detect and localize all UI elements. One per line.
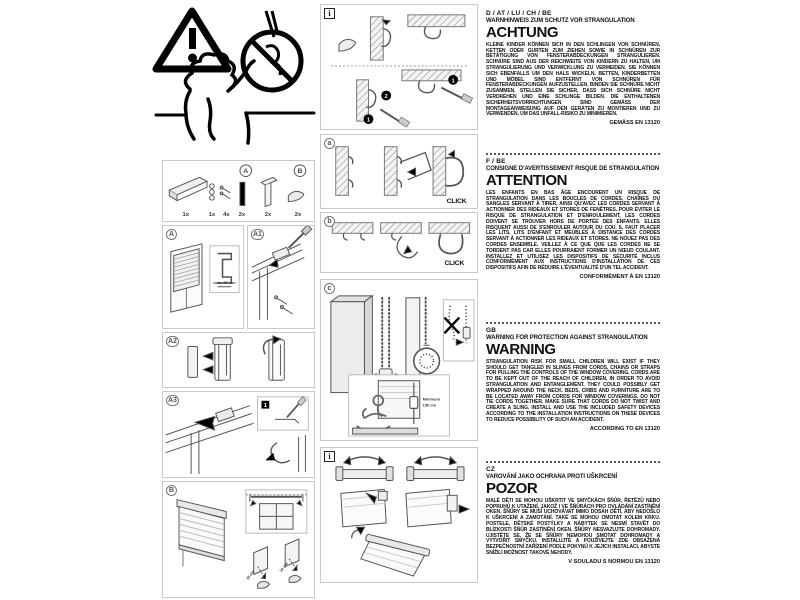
step-a-label: A bbox=[166, 229, 177, 240]
wall-click-panel: a CLICK bbox=[320, 134, 478, 209]
clip-icon bbox=[339, 39, 356, 51]
warning-section-cz: CZ VAROVÁNÍ JAKO OCHRANA PROTI UŠKRCENÍ … bbox=[486, 466, 660, 565]
step-wall-label: a bbox=[324, 138, 335, 149]
step-a3-label: A3 bbox=[166, 395, 179, 406]
ceiling-click-panel: b CLICK bbox=[320, 212, 478, 273]
step-b-panel: B bbox=[162, 481, 315, 598]
kit-b-label: B bbox=[298, 168, 303, 175]
norm-ref-gb: ACCORDING TO EN 13120 bbox=[486, 426, 660, 432]
right-wrong-inset bbox=[443, 300, 474, 361]
warning-section-gb: GB WARNING FOR PROTECTION AGAINST STRANG… bbox=[486, 327, 660, 432]
corner-release-left bbox=[341, 489, 387, 526]
part-quantities: 1x 1x 4x 2x 2x 2x bbox=[183, 212, 302, 218]
step-ceiling-label: b bbox=[324, 216, 335, 227]
parts-list-panel: A B 1x 1x 4x 2x 2x 2x bbox=[162, 160, 315, 222]
title-cz: POZOR bbox=[486, 481, 660, 497]
step-number-badges: 1 2 1 bbox=[364, 75, 458, 124]
ceiling-hook bbox=[424, 27, 440, 39]
child-safety-panel: c bbox=[320, 279, 478, 441]
max-depth-text: max. 25 mm bbox=[213, 280, 236, 285]
click-text-ceiling: CLICK bbox=[444, 260, 464, 267]
bracket-spacing-left bbox=[254, 547, 270, 588]
spacer-strip-part bbox=[240, 182, 245, 205]
svg-text:1x: 1x bbox=[209, 212, 216, 218]
headrail-part bbox=[169, 177, 207, 194]
svg-text:2x: 2x bbox=[295, 212, 302, 218]
warning-triangle-icon bbox=[156, 11, 228, 69]
screwdriver-wall bbox=[380, 109, 409, 127]
step-a3-panel: A3 1 bbox=[162, 391, 315, 478]
step-a2-label: A2 bbox=[166, 336, 179, 347]
bracket-flip bbox=[263, 336, 284, 380]
bracket-mounting-info-panel: i bbox=[320, 4, 478, 130]
spacer-plate bbox=[188, 347, 198, 378]
unrolled-blind bbox=[346, 525, 431, 579]
no-cord-pulling-icon bbox=[243, 11, 301, 90]
info-icon: i bbox=[324, 8, 335, 19]
headrail-tilt-right bbox=[407, 457, 464, 481]
norm-ref-cz: V SOULADU S NORMOU EN 13120 bbox=[486, 559, 660, 565]
step-safety-label: c bbox=[324, 283, 335, 294]
norm-ref-fr: CONFORMÉMENT À EN 13120 bbox=[486, 274, 660, 280]
bracket-column bbox=[213, 338, 232, 380]
country-codes-gb: GB bbox=[486, 327, 660, 334]
clamp-depth-detail: max. 25 mm bbox=[210, 246, 239, 293]
chain-part bbox=[210, 184, 215, 200]
instruction-leaflet-page: A B 1x 1x 4x 2x 2x 2x A bbox=[0, 0, 800, 600]
minimum-height-text-2: 150 cm bbox=[423, 402, 437, 407]
slide-arrow bbox=[195, 416, 215, 430]
wall-strip bbox=[370, 17, 383, 60]
window-width-inset bbox=[246, 490, 307, 533]
strangulation-warning-pictogram bbox=[150, 2, 320, 154]
body-gb: STRANGULATION RISK FOR SMALL CHILDREN WI… bbox=[486, 360, 660, 424]
title-fr: ATTENTION bbox=[486, 173, 660, 189]
roller-blind-3d bbox=[177, 500, 226, 567]
warning-section-de: D / AT / LU / CH / BE WARNHINWEIS ZUM SC… bbox=[486, 10, 660, 126]
country-codes-fr: F / BE bbox=[486, 158, 660, 165]
bracket-spacing-right bbox=[285, 539, 301, 582]
step-a1-panel: A1 bbox=[247, 225, 315, 329]
hook-detail bbox=[265, 435, 305, 472]
minimum-height-text-1: Minimum bbox=[423, 396, 441, 401]
corner-release-right bbox=[406, 489, 469, 526]
title-de: ACHTUNG bbox=[486, 25, 660, 41]
kit-a-label: A bbox=[243, 168, 248, 175]
screwdriver-ceiling bbox=[441, 88, 472, 104]
screwdriver-detail-inset: 1 bbox=[258, 397, 309, 431]
click-text-wall: CLICK bbox=[447, 198, 467, 205]
info-icon-bottom: i bbox=[324, 451, 335, 462]
body-de: KLEINE KINDER KÖNNEN SICH IN DEN SCHLING… bbox=[486, 43, 660, 118]
body-fr: LES ENFANTS EN BAS ÂGE ENCOURENT UN RISQ… bbox=[486, 191, 660, 272]
kit-option-labels: A B bbox=[240, 165, 306, 177]
screws-part bbox=[220, 186, 230, 199]
section-divider bbox=[486, 461, 660, 463]
country-codes-cz: CZ bbox=[486, 466, 660, 473]
country-codes-de: D / AT / LU / CH / BE bbox=[486, 10, 660, 17]
clamp-bracket-installed bbox=[216, 408, 235, 422]
title-gb: WARNING bbox=[486, 342, 660, 358]
clamp-bracket-part bbox=[261, 177, 276, 206]
clamp-on-frame bbox=[272, 247, 289, 260]
step-a-overview-panel: A max. 25 mm bbox=[162, 225, 244, 329]
chain-with-tensioner bbox=[368, 298, 403, 387]
cassette-clicked-ceiling bbox=[439, 234, 463, 253]
push-arrow bbox=[269, 260, 278, 268]
clip-part bbox=[288, 191, 303, 201]
step-a1-label: A1 bbox=[251, 229, 264, 240]
removal-info-panel: i bbox=[320, 447, 478, 583]
warning-section-fr: F / BE CONSIGNE D'AVERTISSEMENT RISQUE D… bbox=[486, 158, 660, 280]
step-b-label: B bbox=[166, 485, 177, 496]
svg-text:2x: 2x bbox=[239, 212, 246, 218]
ceiling-strip bbox=[408, 15, 465, 27]
step-a2-panel: A2 bbox=[162, 332, 315, 388]
svg-text:4x: 4x bbox=[223, 212, 230, 218]
body-cz: MALÉ DĚTI SE MOHOU UŠKRTIT VE SMYČKÁCH Š… bbox=[486, 499, 660, 557]
svg-text:2x: 2x bbox=[265, 212, 272, 218]
section-divider bbox=[486, 322, 660, 324]
headrail-tilt-left bbox=[336, 457, 393, 481]
section-divider bbox=[486, 153, 660, 155]
cassette-clicked bbox=[446, 158, 464, 186]
svg-text:1x: 1x bbox=[183, 212, 190, 218]
norm-ref-de: GEMÄSS EN 13120 bbox=[486, 120, 660, 126]
